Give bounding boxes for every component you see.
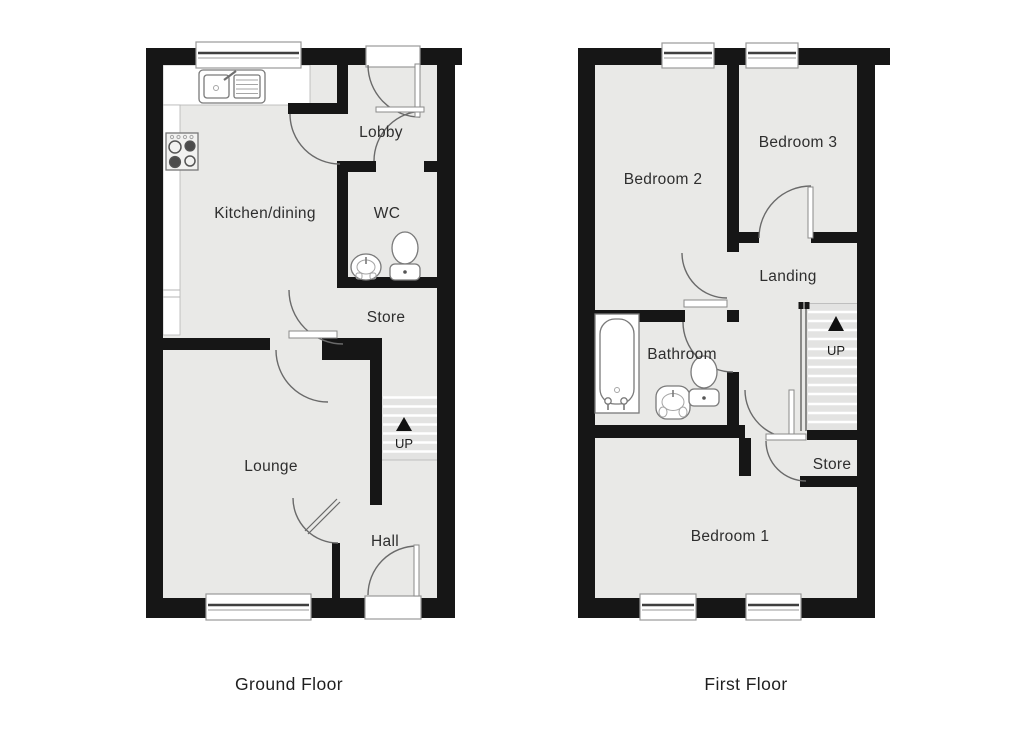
first-stairs: UP — [799, 302, 858, 432]
door-leaf — [376, 107, 424, 112]
stairs-up-label: UP — [827, 343, 845, 358]
door-leaf — [684, 300, 727, 307]
hob — [166, 133, 198, 170]
toilet — [689, 356, 719, 406]
room-label-landing: Landing — [759, 268, 816, 285]
room-label-bedroom3: Bedroom 3 — [759, 134, 838, 151]
room-label-store-first: Store — [813, 456, 852, 473]
wash-basin — [351, 254, 381, 280]
room-label-bedroom2: Bedroom 2 — [624, 171, 703, 188]
bedroom2-window — [662, 43, 714, 68]
room-label-wc: WC — [374, 205, 400, 222]
room-label-hall: Hall — [371, 533, 399, 550]
door-leaf — [766, 434, 806, 440]
wash-basin — [656, 386, 690, 419]
floorplan-canvas: UP — [0, 0, 1024, 731]
first-floor-plan: UP — [578, 43, 890, 620]
room-label-kitchen: Kitchen/dining — [214, 205, 316, 222]
door-leaf — [808, 187, 813, 238]
hall-door-opening — [365, 596, 421, 619]
door-leaf — [289, 331, 337, 338]
bedroom1-window-right — [746, 594, 801, 620]
door-leaf — [789, 390, 794, 438]
ground-stairs: UP — [382, 397, 437, 460]
ground-floor-caption: Ground Floor — [235, 674, 343, 695]
lounge-window — [206, 594, 311, 620]
room-label-lobby: Lobby — [359, 124, 403, 141]
ground-floor-plan: UP — [146, 42, 462, 620]
room-label-store: Store — [367, 309, 406, 326]
bathtub — [595, 314, 639, 413]
front-door-opening — [366, 46, 420, 67]
room-label-lounge: Lounge — [244, 458, 298, 475]
kitchen-window — [196, 42, 301, 68]
floorplans-drawing: UP — [0, 0, 1024, 655]
bedroom1-window-left — [640, 594, 696, 620]
toilet — [390, 232, 420, 280]
first-floor-caption: First Floor — [704, 674, 787, 695]
room-label-bathroom: Bathroom — [647, 346, 717, 363]
kitchen-sink — [199, 70, 265, 103]
stairs-up-label: UP — [395, 436, 413, 451]
room-label-bedroom1: Bedroom 1 — [691, 528, 770, 545]
door-leaf — [414, 545, 419, 596]
bedroom3-window — [746, 43, 798, 68]
